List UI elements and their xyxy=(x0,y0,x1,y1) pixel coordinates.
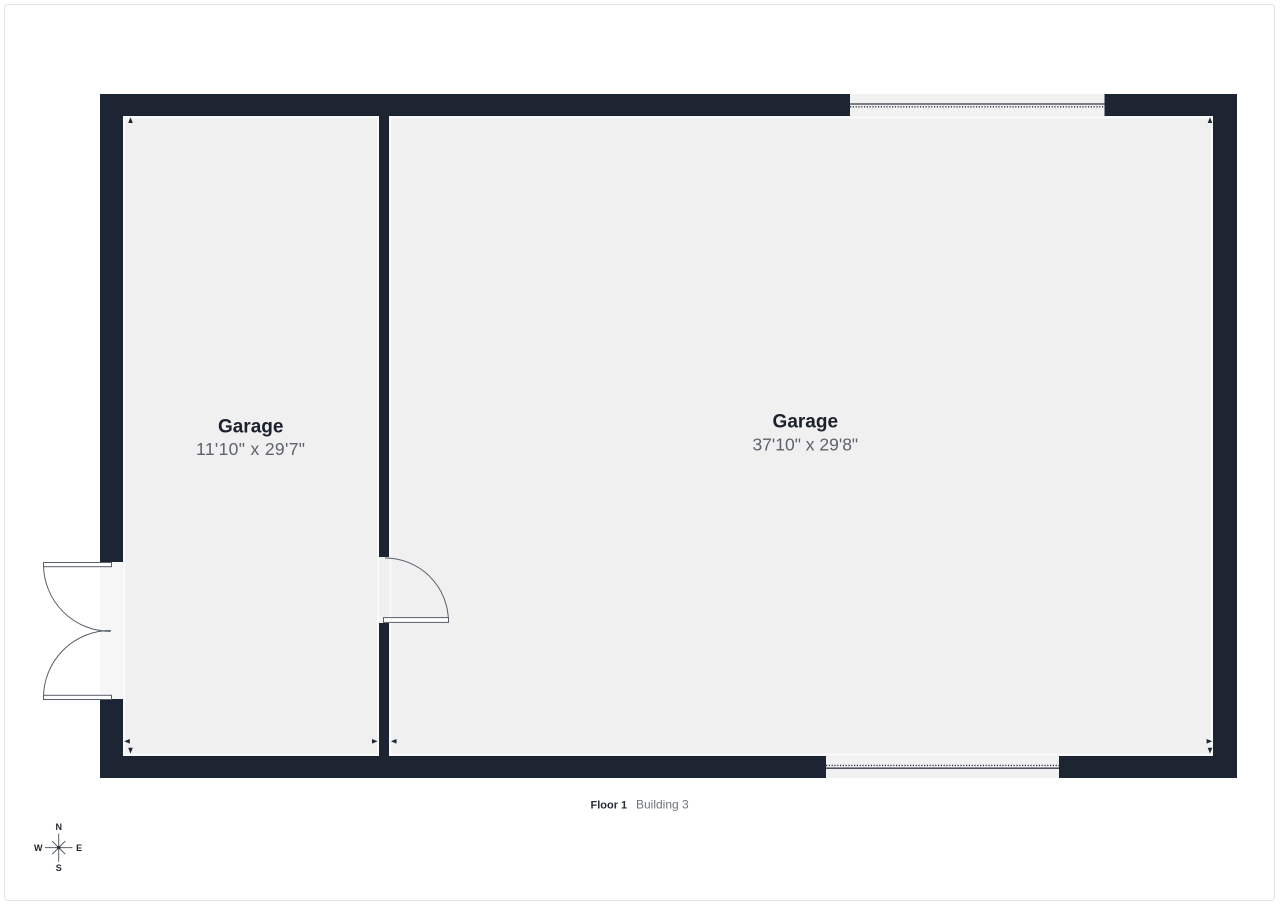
svg-text:N: N xyxy=(55,822,62,832)
svg-text:E: E xyxy=(76,843,82,853)
svg-text:Garage: Garage xyxy=(218,416,283,437)
svg-text:Garage: Garage xyxy=(773,411,838,432)
svg-text:Floor 1: Floor 1 xyxy=(591,799,628,811)
svg-text:37'10" x 29'8": 37'10" x 29'8" xyxy=(752,434,858,454)
svg-text:W: W xyxy=(34,843,43,853)
svg-text:Building 3: Building 3 xyxy=(636,797,689,811)
svg-text:11'10" x 29'7": 11'10" x 29'7" xyxy=(196,439,305,459)
svg-text:S: S xyxy=(56,863,62,873)
